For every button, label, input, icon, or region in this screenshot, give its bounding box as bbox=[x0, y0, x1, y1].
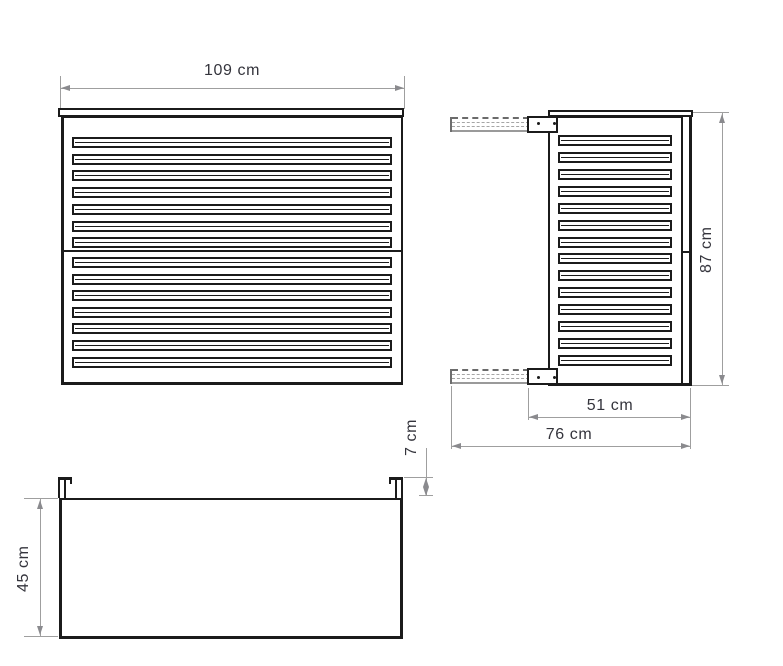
front-width-extension-line-left bbox=[60, 76, 61, 109]
plan-depth-extension-bottom bbox=[24, 636, 58, 637]
side-height-arrow-top bbox=[719, 114, 725, 123]
side-total-depth-label: 76 cm bbox=[499, 426, 639, 444]
screw-hole-dot bbox=[553, 122, 556, 125]
side-bracket-depth-arrow-right bbox=[681, 414, 690, 420]
side-height-extension-line-top bbox=[693, 112, 729, 113]
side-lower-hidden-arm bbox=[450, 369, 529, 384]
side-height-extension-line-bottom bbox=[692, 385, 729, 386]
louver-slat bbox=[558, 169, 672, 180]
louver-slat bbox=[558, 220, 672, 231]
side-upper-hidden-arm bbox=[450, 117, 529, 132]
hidden-line bbox=[452, 369, 529, 371]
plan-depth-arrow-top bbox=[37, 500, 43, 509]
technical-drawing-canvas: 109 cm bbox=[0, 0, 783, 666]
plan-depth-dimension-line bbox=[40, 499, 41, 636]
side-bracket-depth-label: 51 cm bbox=[540, 397, 680, 415]
plan-left-tab-inner bbox=[64, 479, 66, 498]
side-bottom-edge bbox=[548, 383, 692, 386]
louver-slat bbox=[558, 203, 672, 214]
louver-slat bbox=[558, 152, 672, 163]
plan-lip-arrow-bottom bbox=[423, 487, 429, 496]
side-back-panel-line bbox=[689, 115, 692, 383]
louver-slat bbox=[558, 338, 672, 349]
louver-slat bbox=[72, 221, 392, 232]
plan-right-tab-post bbox=[401, 477, 403, 498]
louver-slat bbox=[72, 340, 392, 351]
hidden-line bbox=[452, 130, 529, 132]
side-top-cap bbox=[548, 110, 693, 117]
louver-slat bbox=[72, 307, 392, 318]
side-total-depth-arrow-left bbox=[452, 443, 461, 449]
louver-slat bbox=[72, 274, 392, 285]
hidden-line bbox=[452, 126, 529, 127]
louver-slat bbox=[558, 304, 672, 315]
front-section-divider bbox=[62, 250, 402, 252]
plan-right-tab-hook bbox=[389, 477, 391, 484]
side-bracket-depth-dimension-line bbox=[529, 417, 690, 418]
side-total-depth-extension-left bbox=[451, 386, 452, 449]
louver-slat bbox=[558, 186, 672, 197]
louver-slat bbox=[72, 187, 392, 198]
side-left-edge bbox=[548, 117, 550, 383]
side-height-label: 87 cm bbox=[698, 219, 716, 281]
plan-depth-label: 45 cm bbox=[15, 537, 33, 601]
plan-right-tab-flange bbox=[389, 477, 403, 480]
louver-slat bbox=[72, 257, 392, 268]
louver-slat bbox=[72, 154, 392, 165]
side-bracket-depth-arrow-left bbox=[529, 414, 538, 420]
side-total-depth-dimension-line bbox=[452, 446, 690, 447]
louver-slat bbox=[72, 204, 392, 215]
plan-right-tab-inner bbox=[395, 479, 397, 498]
side-body-top-line bbox=[550, 117, 681, 118]
front-width-arrow-right bbox=[395, 85, 404, 91]
side-height-dimension-line bbox=[722, 113, 723, 385]
plan-left-tab-hook bbox=[70, 477, 72, 484]
louver-slat bbox=[558, 321, 672, 332]
plan-lip-arrow-top bbox=[423, 478, 429, 487]
louver-slat bbox=[72, 237, 392, 248]
plan-lip-label: 7 cm bbox=[403, 413, 421, 461]
louver-slat bbox=[72, 290, 392, 301]
front-width-extension-line-right bbox=[404, 76, 405, 109]
louver-slat bbox=[72, 170, 392, 181]
screw-hole-dot bbox=[553, 376, 556, 379]
side-frame-notch bbox=[683, 251, 689, 253]
side-front-frame-line bbox=[681, 117, 683, 383]
louver-slat bbox=[558, 135, 672, 146]
front-width-label: 109 cm bbox=[150, 62, 314, 80]
hidden-line bbox=[452, 382, 529, 384]
louver-slat bbox=[558, 253, 672, 264]
plan-left-tab-post bbox=[58, 477, 60, 498]
hidden-line bbox=[452, 378, 529, 379]
louver-slat bbox=[72, 323, 392, 334]
louver-slat bbox=[558, 237, 672, 248]
louver-slat bbox=[72, 137, 392, 148]
louver-slat bbox=[558, 270, 672, 281]
hidden-line bbox=[452, 122, 529, 123]
side-shared-extension-right bbox=[690, 388, 691, 449]
louver-slat bbox=[558, 355, 672, 366]
side-height-arrow-bottom bbox=[719, 375, 725, 384]
plan-footprint-outline bbox=[59, 498, 403, 639]
hidden-line bbox=[452, 374, 529, 375]
screw-hole-dot bbox=[537, 122, 540, 125]
plan-depth-extension-top bbox=[24, 498, 58, 499]
screw-hole-dot bbox=[537, 376, 540, 379]
louver-slat bbox=[72, 357, 392, 368]
plan-depth-arrow-bottom bbox=[37, 626, 43, 635]
front-width-dimension-line bbox=[61, 88, 404, 89]
louver-slat bbox=[558, 287, 672, 298]
side-total-depth-arrow-right bbox=[681, 443, 690, 449]
front-width-arrow-left bbox=[61, 85, 70, 91]
hidden-line bbox=[452, 117, 529, 119]
